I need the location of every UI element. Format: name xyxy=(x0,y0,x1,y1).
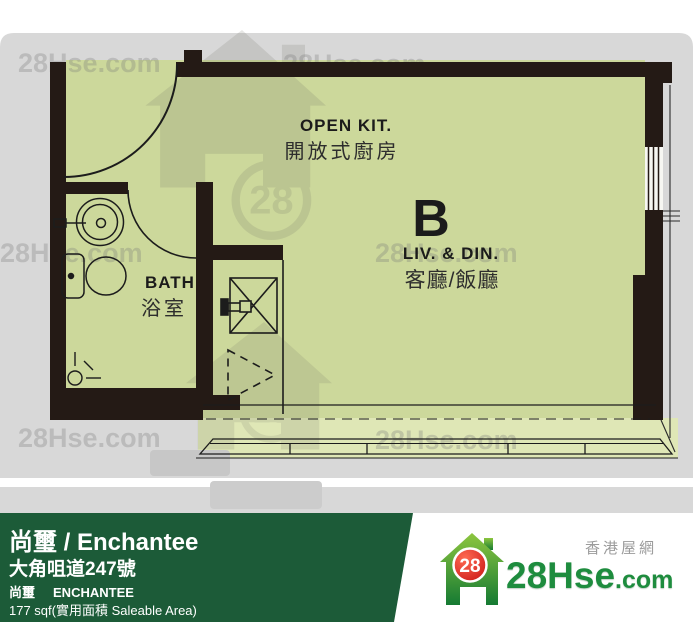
watermark-text: 28Hse.com xyxy=(18,48,161,78)
bath-label-en: BATH xyxy=(145,273,195,292)
backdrop-strip xyxy=(0,487,693,513)
property-name-zh: 尚璽 xyxy=(9,585,35,600)
bath-label-zh: 浴室 xyxy=(141,297,187,320)
right-window-icon xyxy=(645,147,663,210)
brand-logo[interactable]: 28 香港屋網 28Hse.com xyxy=(440,528,690,618)
kitchen-label-en: OPEN KIT. xyxy=(300,116,392,135)
living-label-zh: 客廳/飯廳 xyxy=(405,269,500,292)
living-label-en: LIV. & DIN. xyxy=(403,244,499,263)
property-title: 尚璽 / Enchantee xyxy=(9,522,198,557)
brand-house-icon: 28 xyxy=(440,533,504,607)
brand-wordmark: 28Hse.com xyxy=(506,555,673,597)
watermark-shape xyxy=(210,481,322,509)
watermark-text: 28Hse.com xyxy=(18,423,161,453)
floorplan-canvas: 28 28 28Hse.com 28Hse.com 28Hse.com 28Hs… xyxy=(0,0,693,513)
footer-green-panel: 尚璽 / Enchantee 大角咀道247號 尚璽ENCHANTEE 177 … xyxy=(0,513,440,622)
room-fill xyxy=(66,60,645,420)
property-area: 177 sqf(實用面積 Saleable Area) xyxy=(9,600,197,619)
watermark-text: 28Hse.com xyxy=(375,425,518,455)
svg-text:28: 28 xyxy=(459,556,480,577)
property-address: 大角咀道247號 xyxy=(9,554,136,581)
svg-text:28: 28 xyxy=(249,179,293,223)
property-names: 尚璽ENCHANTEE xyxy=(9,582,134,601)
floorplan-flyer: 28 28 28Hse.com 28Hse.com 28Hse.com 28Hs… xyxy=(0,0,693,622)
kitchen-label-zh: 開放式廚房 xyxy=(285,139,400,163)
unit-label: B xyxy=(412,190,450,248)
property-name-en: ENCHANTEE xyxy=(53,585,134,600)
